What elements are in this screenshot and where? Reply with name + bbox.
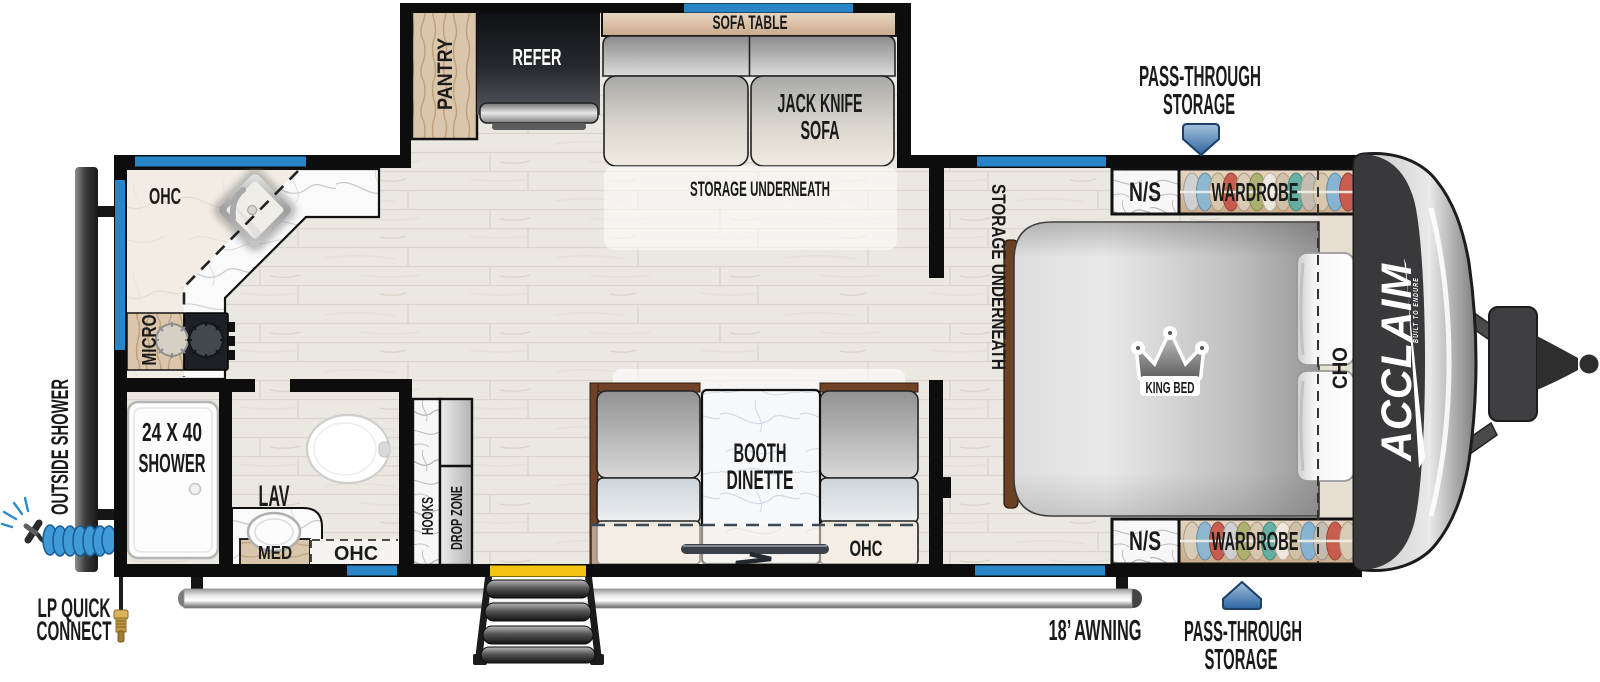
svg-text:WARDROBE: WARDROBE (1212, 526, 1299, 556)
svg-text:STORAGE: STORAGE (1205, 644, 1278, 676)
svg-text:N/S: N/S (1129, 177, 1161, 207)
svg-text:OHC: OHC (334, 543, 378, 565)
svg-text:OHC: OHC (149, 183, 181, 209)
svg-text:PANTRY: PANTRY (434, 38, 457, 110)
svg-text:JACK KNIFE: JACK KNIFE (778, 88, 863, 118)
svg-text:KING BED: KING BED (1146, 380, 1195, 397)
svg-text:CHO: CHO (1329, 347, 1352, 389)
svg-text:STORAGE UNDERNEATH: STORAGE UNDERNEATH (690, 178, 830, 201)
svg-text:STORAGE UNDERNEATH: STORAGE UNDERNEATH (987, 184, 1008, 370)
svg-text:CONNECT: CONNECT (37, 616, 112, 646)
svg-text:HOOKS: HOOKS (420, 497, 437, 535)
svg-text:SOFA TABLE: SOFA TABLE (713, 13, 788, 34)
svg-text:OUTSIDE SHOWER: OUTSIDE SHOWER (47, 379, 74, 515)
svg-text:WARDROBE: WARDROBE (1212, 177, 1299, 207)
svg-text:BOOTH: BOOTH (734, 438, 787, 468)
svg-text:BUILT TO ENDURE: BUILT TO ENDURE (1411, 277, 1420, 343)
svg-text:DINETTE: DINETTE (727, 465, 794, 495)
svg-text:MED: MED (258, 543, 292, 563)
svg-text:24 X 40: 24 X 40 (142, 417, 202, 447)
svg-text:18’ AWNING: 18’ AWNING (1049, 615, 1142, 647)
svg-text:REFER: REFER (513, 44, 562, 70)
svg-text:LAV: LAV (259, 480, 290, 513)
svg-text:OHC: OHC (850, 536, 883, 561)
svg-text:SHOWER: SHOWER (139, 448, 206, 478)
svg-text:N/S: N/S (1129, 526, 1161, 556)
svg-text:MICRO: MICRO (139, 315, 161, 366)
svg-text:SOFA: SOFA (801, 115, 840, 145)
svg-text:DROP ZONE: DROP ZONE (449, 486, 466, 550)
svg-text:STORAGE: STORAGE (1163, 89, 1235, 121)
